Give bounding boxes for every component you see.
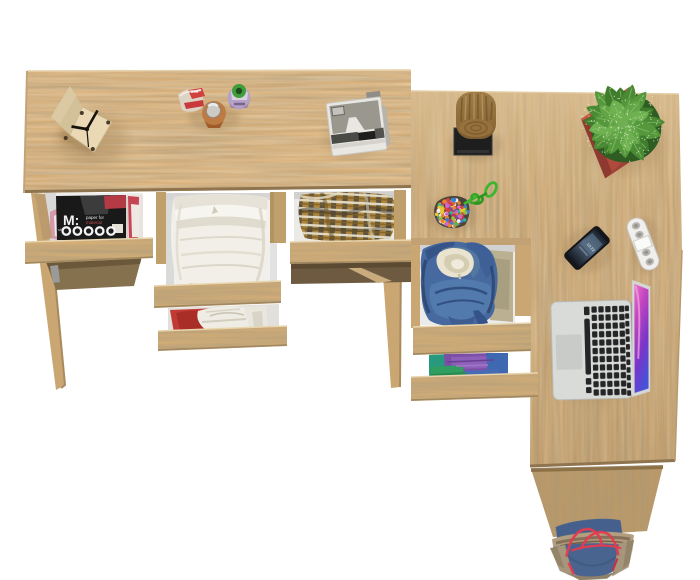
svg-text:M:: M: — [63, 212, 79, 228]
svg-text:material: material — [86, 220, 102, 225]
